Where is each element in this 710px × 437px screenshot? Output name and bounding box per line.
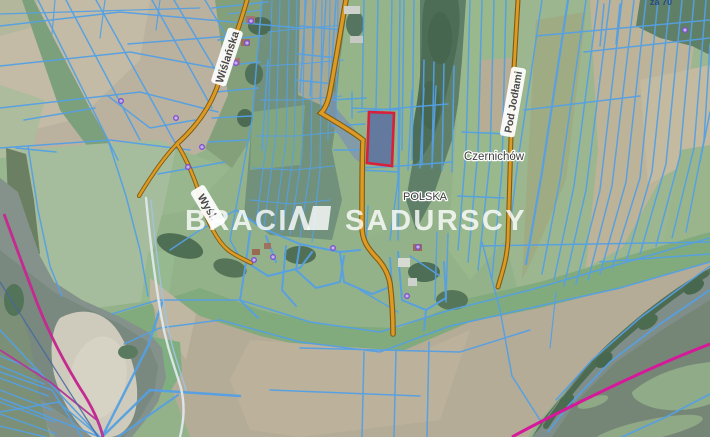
svg-text:za 70: za 70 — [650, 0, 672, 7]
svg-text:POLSKA: POLSKA — [403, 191, 448, 203]
svg-text:SADURSCY: SADURSCY — [345, 205, 527, 237]
svg-text:BRACI: BRACI — [185, 205, 289, 237]
svg-text:Czernichów: Czernichów — [464, 151, 525, 163]
